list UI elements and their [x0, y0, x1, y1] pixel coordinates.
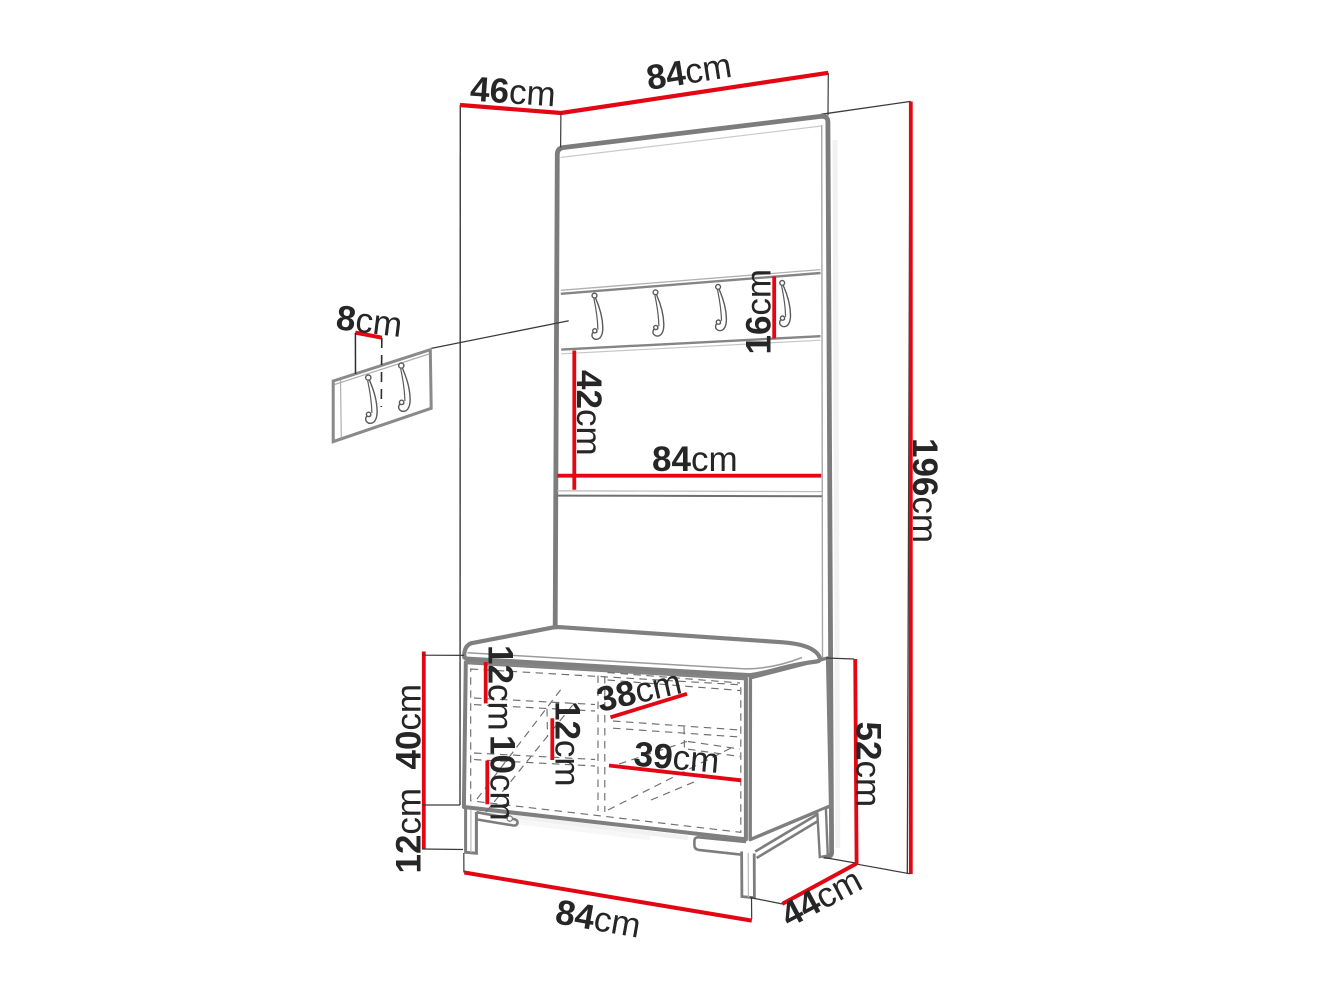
svg-text:39cm: 39cm [632, 735, 721, 781]
svg-text:12cm: 12cm [390, 788, 429, 874]
svg-text:12cm: 12cm [547, 701, 586, 787]
svg-text:40cm: 40cm [390, 684, 429, 770]
svg-text:42cm: 42cm [569, 370, 608, 456]
svg-text:16cm: 16cm [740, 269, 779, 355]
svg-text:196cm: 196cm [905, 438, 944, 543]
svg-text:44cm: 44cm [774, 860, 868, 935]
svg-text:10cm: 10cm [483, 735, 522, 821]
svg-text:52cm: 52cm [849, 722, 888, 808]
svg-text:8cm: 8cm [334, 298, 404, 345]
svg-text:84cm: 84cm [652, 440, 738, 479]
svg-text:46cm: 46cm [469, 70, 557, 115]
svg-text:12cm: 12cm [481, 645, 520, 731]
